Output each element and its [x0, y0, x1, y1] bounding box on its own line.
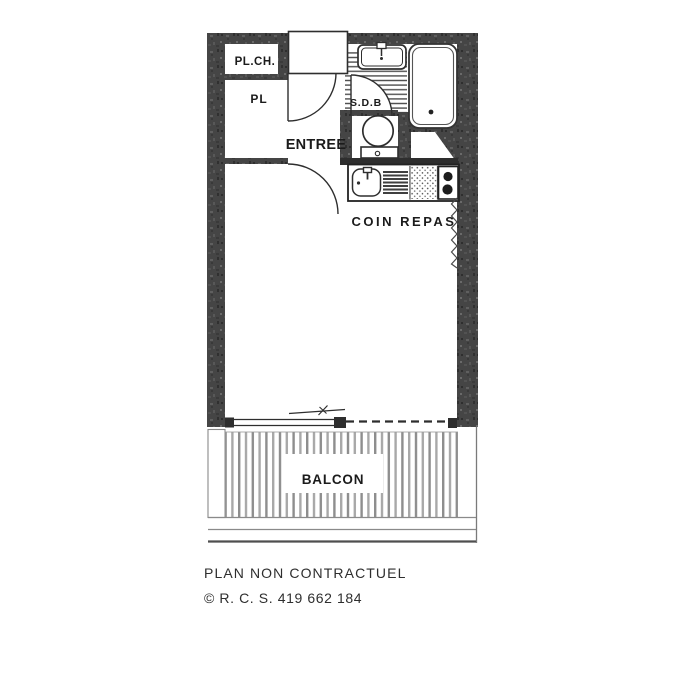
draining-board [383, 172, 408, 193]
toilet-button [375, 151, 379, 155]
bathtub-outer [409, 44, 457, 128]
kitchen-tap [364, 168, 372, 173]
wall-sdb-wc [345, 110, 398, 116]
window-frame-left [225, 418, 234, 428]
floorplan-image: BALCON [0, 0, 700, 700]
wall-left [207, 33, 225, 427]
wall-top-right [347, 33, 478, 44]
toilet-bowl [363, 116, 393, 146]
kitchen-sink-drain [357, 181, 360, 184]
wall-top-left [207, 33, 288, 44]
pl-label: PL [250, 92, 267, 106]
balcon-label: BALCON [302, 472, 365, 487]
stove-burner-1 [443, 172, 452, 181]
sdb-label: S.D.B [350, 97, 382, 109]
window-frame-right [448, 418, 457, 428]
window-frame-middle [334, 417, 346, 428]
washbasin [358, 43, 406, 70]
plch-label: PL.CH. [235, 56, 276, 68]
bathtub-drain [429, 110, 434, 115]
bathtub [409, 44, 457, 128]
entree-label: ENTREE [286, 137, 347, 153]
balcony-left-edge [208, 430, 225, 518]
wall-right [457, 33, 478, 427]
coin-repas-label: COIN REPAS [352, 214, 457, 229]
wall-plch-pl [221, 74, 288, 80]
kitchen-counter [348, 165, 459, 202]
copyright-text: © R. C. S. 419 662 184 [204, 590, 362, 606]
entry-landing [289, 32, 348, 74]
wall-plch-entry [278, 33, 288, 80]
washbasin-tap [377, 43, 386, 49]
wall-pl-bottom [207, 158, 288, 164]
disclaimer-text: PLAN NON CONTRACTUEL [204, 565, 406, 581]
balcony-right-edge [458, 427, 476, 543]
stove-burner-2 [442, 184, 452, 194]
counter-worktop [411, 166, 438, 199]
washbasin-drain [380, 57, 383, 60]
floorplan-page: BALCON [0, 0, 700, 700]
